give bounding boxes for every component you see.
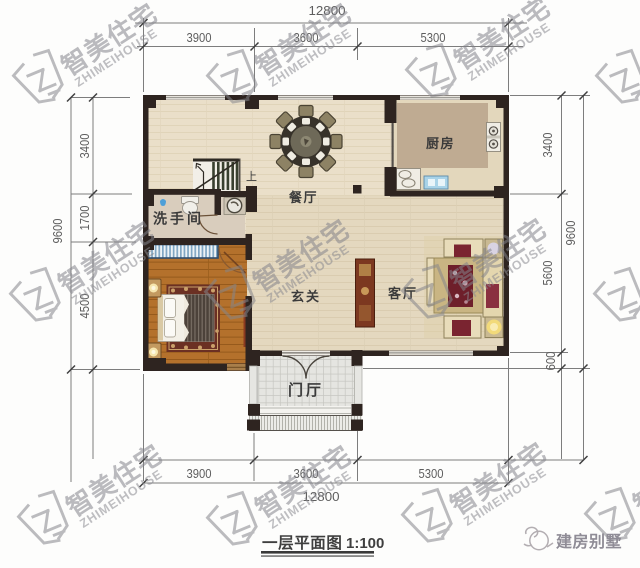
svg-text:厨房: 厨房 bbox=[426, 136, 455, 151]
svg-text:3900: 3900 bbox=[187, 466, 212, 481]
svg-text:3400: 3400 bbox=[540, 133, 555, 158]
svg-text:1700: 1700 bbox=[77, 206, 92, 231]
svg-text:3900: 3900 bbox=[187, 30, 212, 45]
svg-text:1:100: 1:100 bbox=[346, 535, 384, 552]
svg-text:9600: 9600 bbox=[50, 219, 65, 244]
svg-text:一层平面图: 一层平面图 bbox=[262, 534, 343, 552]
svg-text:9600: 9600 bbox=[563, 221, 578, 246]
svg-text:上: 上 bbox=[246, 170, 257, 183]
svg-text:600: 600 bbox=[543, 352, 558, 371]
svg-text:3400: 3400 bbox=[77, 134, 92, 159]
svg-text:5300: 5300 bbox=[421, 30, 446, 45]
svg-text:5600: 5600 bbox=[540, 261, 555, 286]
svg-text:玄关: 玄关 bbox=[291, 289, 321, 304]
svg-text:门厅: 门厅 bbox=[288, 381, 324, 399]
svg-text:建房别墅: 建房别墅 bbox=[556, 532, 622, 551]
svg-text:5300: 5300 bbox=[419, 466, 444, 481]
svg-text:洗手间: 洗手间 bbox=[153, 211, 204, 227]
svg-text:餐厅: 餐厅 bbox=[288, 190, 318, 205]
